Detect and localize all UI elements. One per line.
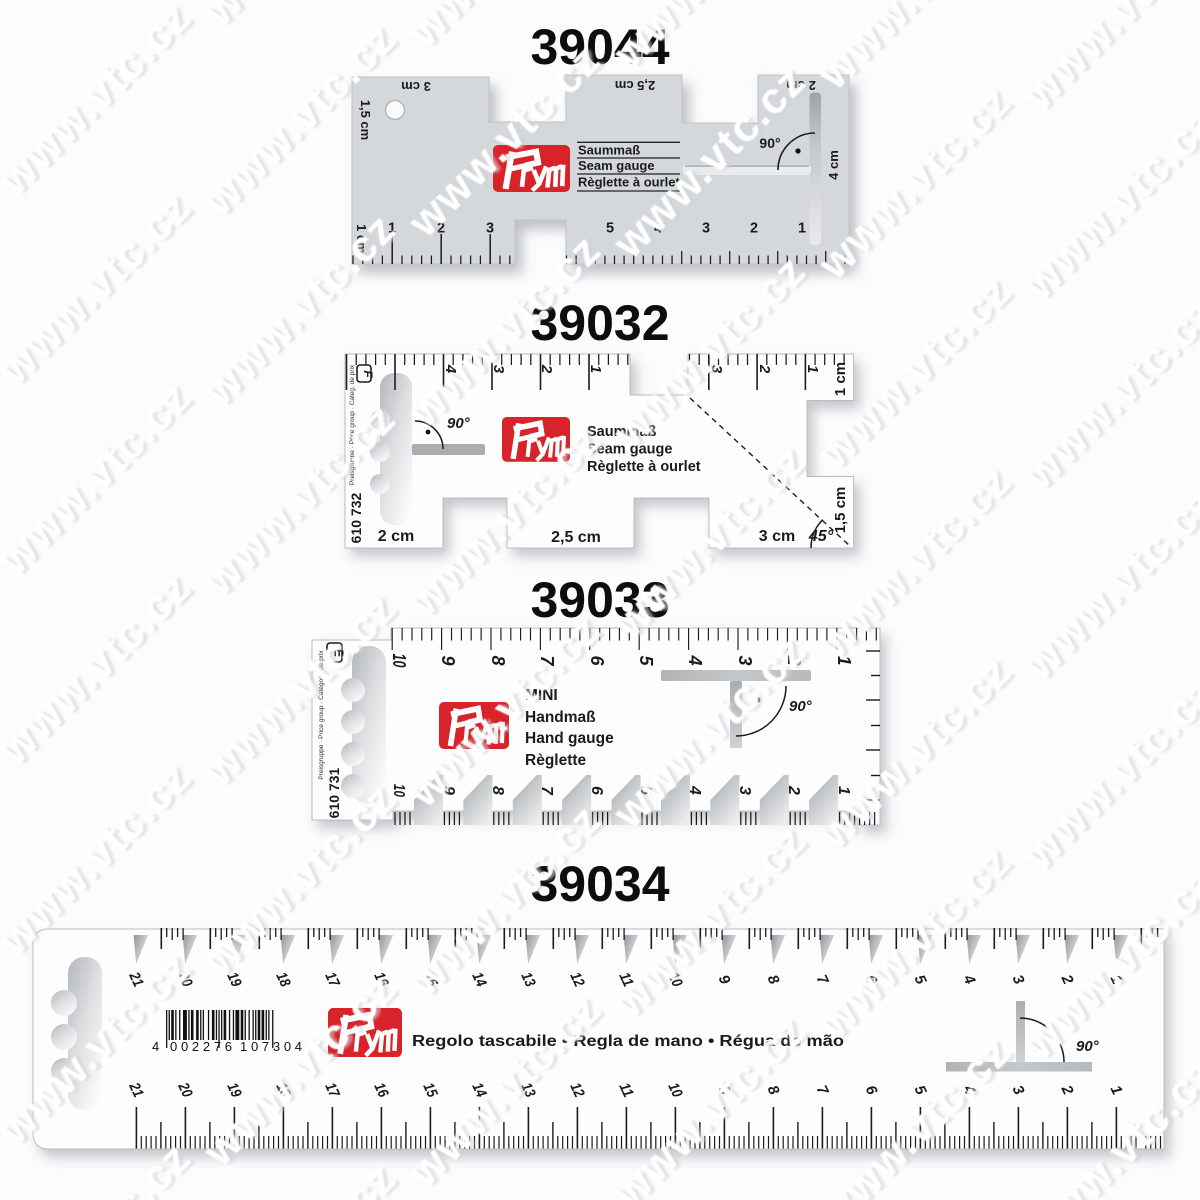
- svg-text:5: 5: [606, 221, 614, 237]
- svg-text:Hand gauge: Hand gauge: [525, 730, 614, 747]
- svg-text:9: 9: [438, 655, 458, 665]
- svg-text:45°: 45°: [808, 528, 834, 545]
- svg-text:Preisgruppe · Price group · Ca: Preisgruppe · Price group · Catégorie de…: [318, 650, 325, 780]
- svg-text:4: 4: [686, 785, 703, 795]
- svg-text:3: 3: [702, 221, 710, 237]
- svg-text:7: 7: [537, 655, 557, 666]
- svg-text:E: E: [332, 649, 347, 658]
- svg-text:Règlette: Règlette: [525, 752, 587, 769]
- svg-text:10: 10: [390, 784, 407, 797]
- svg-text:2: 2: [756, 364, 773, 374]
- svg-text:2 cm: 2 cm: [378, 528, 414, 545]
- svg-text:2: 2: [437, 221, 445, 237]
- svg-text:3 cm: 3 cm: [401, 79, 431, 94]
- svg-text:1: 1: [388, 221, 396, 237]
- svg-text:3: 3: [490, 365, 507, 374]
- svg-text:3 cm: 3 cm: [759, 528, 795, 545]
- svg-text:F: F: [361, 370, 375, 378]
- svg-text:6: 6: [588, 786, 605, 795]
- svg-text:3: 3: [736, 786, 753, 795]
- svg-text:1: 1: [834, 655, 854, 665]
- svg-text:3: 3: [735, 655, 755, 665]
- svg-text:1,5 cm: 1,5 cm: [358, 100, 373, 140]
- svg-text:90°: 90°: [447, 415, 471, 432]
- svg-text:610 732: 610 732: [348, 492, 364, 543]
- svg-text:Preisgruppe · Price group · Ca: Preisgruppe · Price group · Categ. de pr…: [349, 364, 356, 485]
- svg-text:MINI: MINI: [525, 687, 558, 704]
- svg-text:2: 2: [538, 364, 555, 374]
- svg-text:Seam gauge: Seam gauge: [578, 158, 655, 173]
- svg-text:4: 4: [442, 364, 459, 374]
- svg-text:4 cm: 4 cm: [826, 150, 841, 180]
- svg-text:4: 4: [685, 654, 705, 665]
- svg-text:1,5 cm: 1,5 cm: [832, 487, 849, 534]
- svg-text:1 cm: 1 cm: [354, 224, 369, 254]
- svg-text:1 cm: 1 cm: [832, 362, 849, 396]
- svg-text:Règlette à ourlet: Règlette à ourlet: [578, 175, 681, 190]
- svg-text:2: 2: [784, 654, 804, 665]
- svg-text:2,5 cm: 2,5 cm: [551, 529, 601, 546]
- svg-text:Handmaß: Handmaß: [525, 709, 596, 726]
- svg-text:7: 7: [538, 786, 555, 796]
- svg-text:4: 4: [152, 1039, 159, 1054]
- svg-text:2,5 cm: 2,5 cm: [615, 78, 655, 93]
- svg-text:1: 1: [804, 365, 821, 373]
- svg-text:39032: 39032: [530, 295, 669, 351]
- svg-text:Saummaß: Saummaß: [587, 424, 656, 440]
- svg-text:90°: 90°: [759, 135, 780, 151]
- svg-text:10: 10: [389, 654, 409, 668]
- svg-text:5: 5: [637, 786, 654, 796]
- svg-text:90°: 90°: [1076, 1038, 1100, 1055]
- svg-text:Seam gauge: Seam gauge: [587, 442, 672, 458]
- svg-text:6: 6: [587, 655, 607, 666]
- svg-text:39033: 39033: [530, 572, 669, 628]
- svg-text:4: 4: [654, 221, 662, 237]
- svg-text:3: 3: [486, 221, 494, 237]
- svg-text:610 731: 610 731: [326, 767, 342, 818]
- svg-text:1: 1: [798, 221, 806, 237]
- svg-text:9: 9: [440, 786, 457, 795]
- svg-text:2: 2: [785, 785, 802, 795]
- svg-text:Regolo tascabile • Regla de ma: Regolo tascabile • Regla de mano • Régua…: [412, 1033, 844, 1050]
- svg-text:1: 1: [587, 365, 604, 373]
- svg-text:5: 5: [636, 655, 656, 666]
- svg-text:90°: 90°: [789, 698, 813, 715]
- svg-text:Règlette à ourlet: Règlette à ourlet: [587, 459, 701, 475]
- svg-text:3: 3: [708, 365, 725, 374]
- svg-text:8: 8: [488, 655, 508, 665]
- svg-text:2 cm: 2 cm: [786, 78, 816, 93]
- svg-text:39044: 39044: [530, 19, 669, 75]
- svg-text:39034: 39034: [530, 856, 669, 912]
- svg-text:1: 1: [835, 786, 852, 795]
- svg-text:2: 2: [750, 221, 758, 237]
- svg-text:Saummaß: Saummaß: [578, 143, 640, 158]
- svg-text:8: 8: [489, 786, 506, 795]
